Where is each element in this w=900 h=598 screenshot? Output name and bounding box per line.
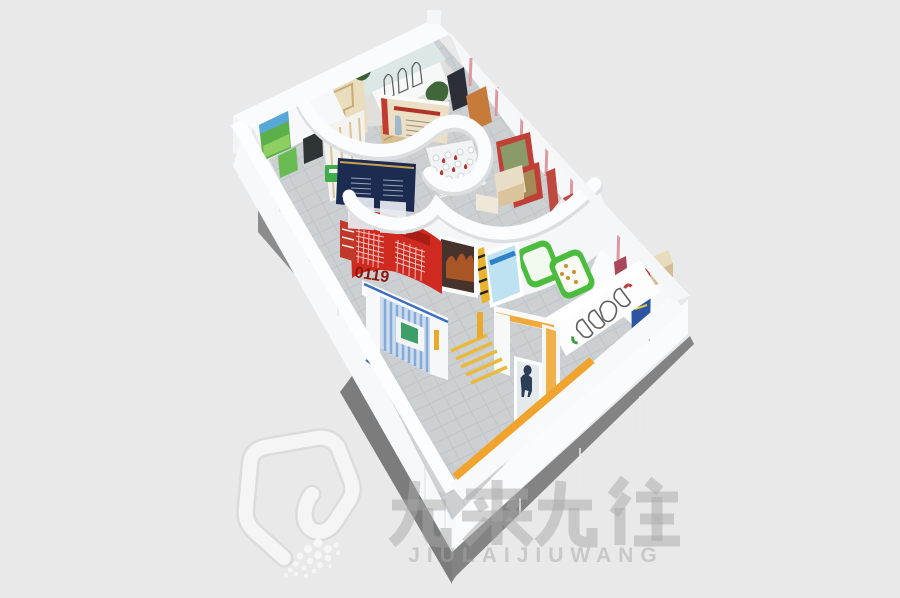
svg-text:JIULAIJIUWANG: JIULAIJIUWANG (408, 544, 664, 567)
